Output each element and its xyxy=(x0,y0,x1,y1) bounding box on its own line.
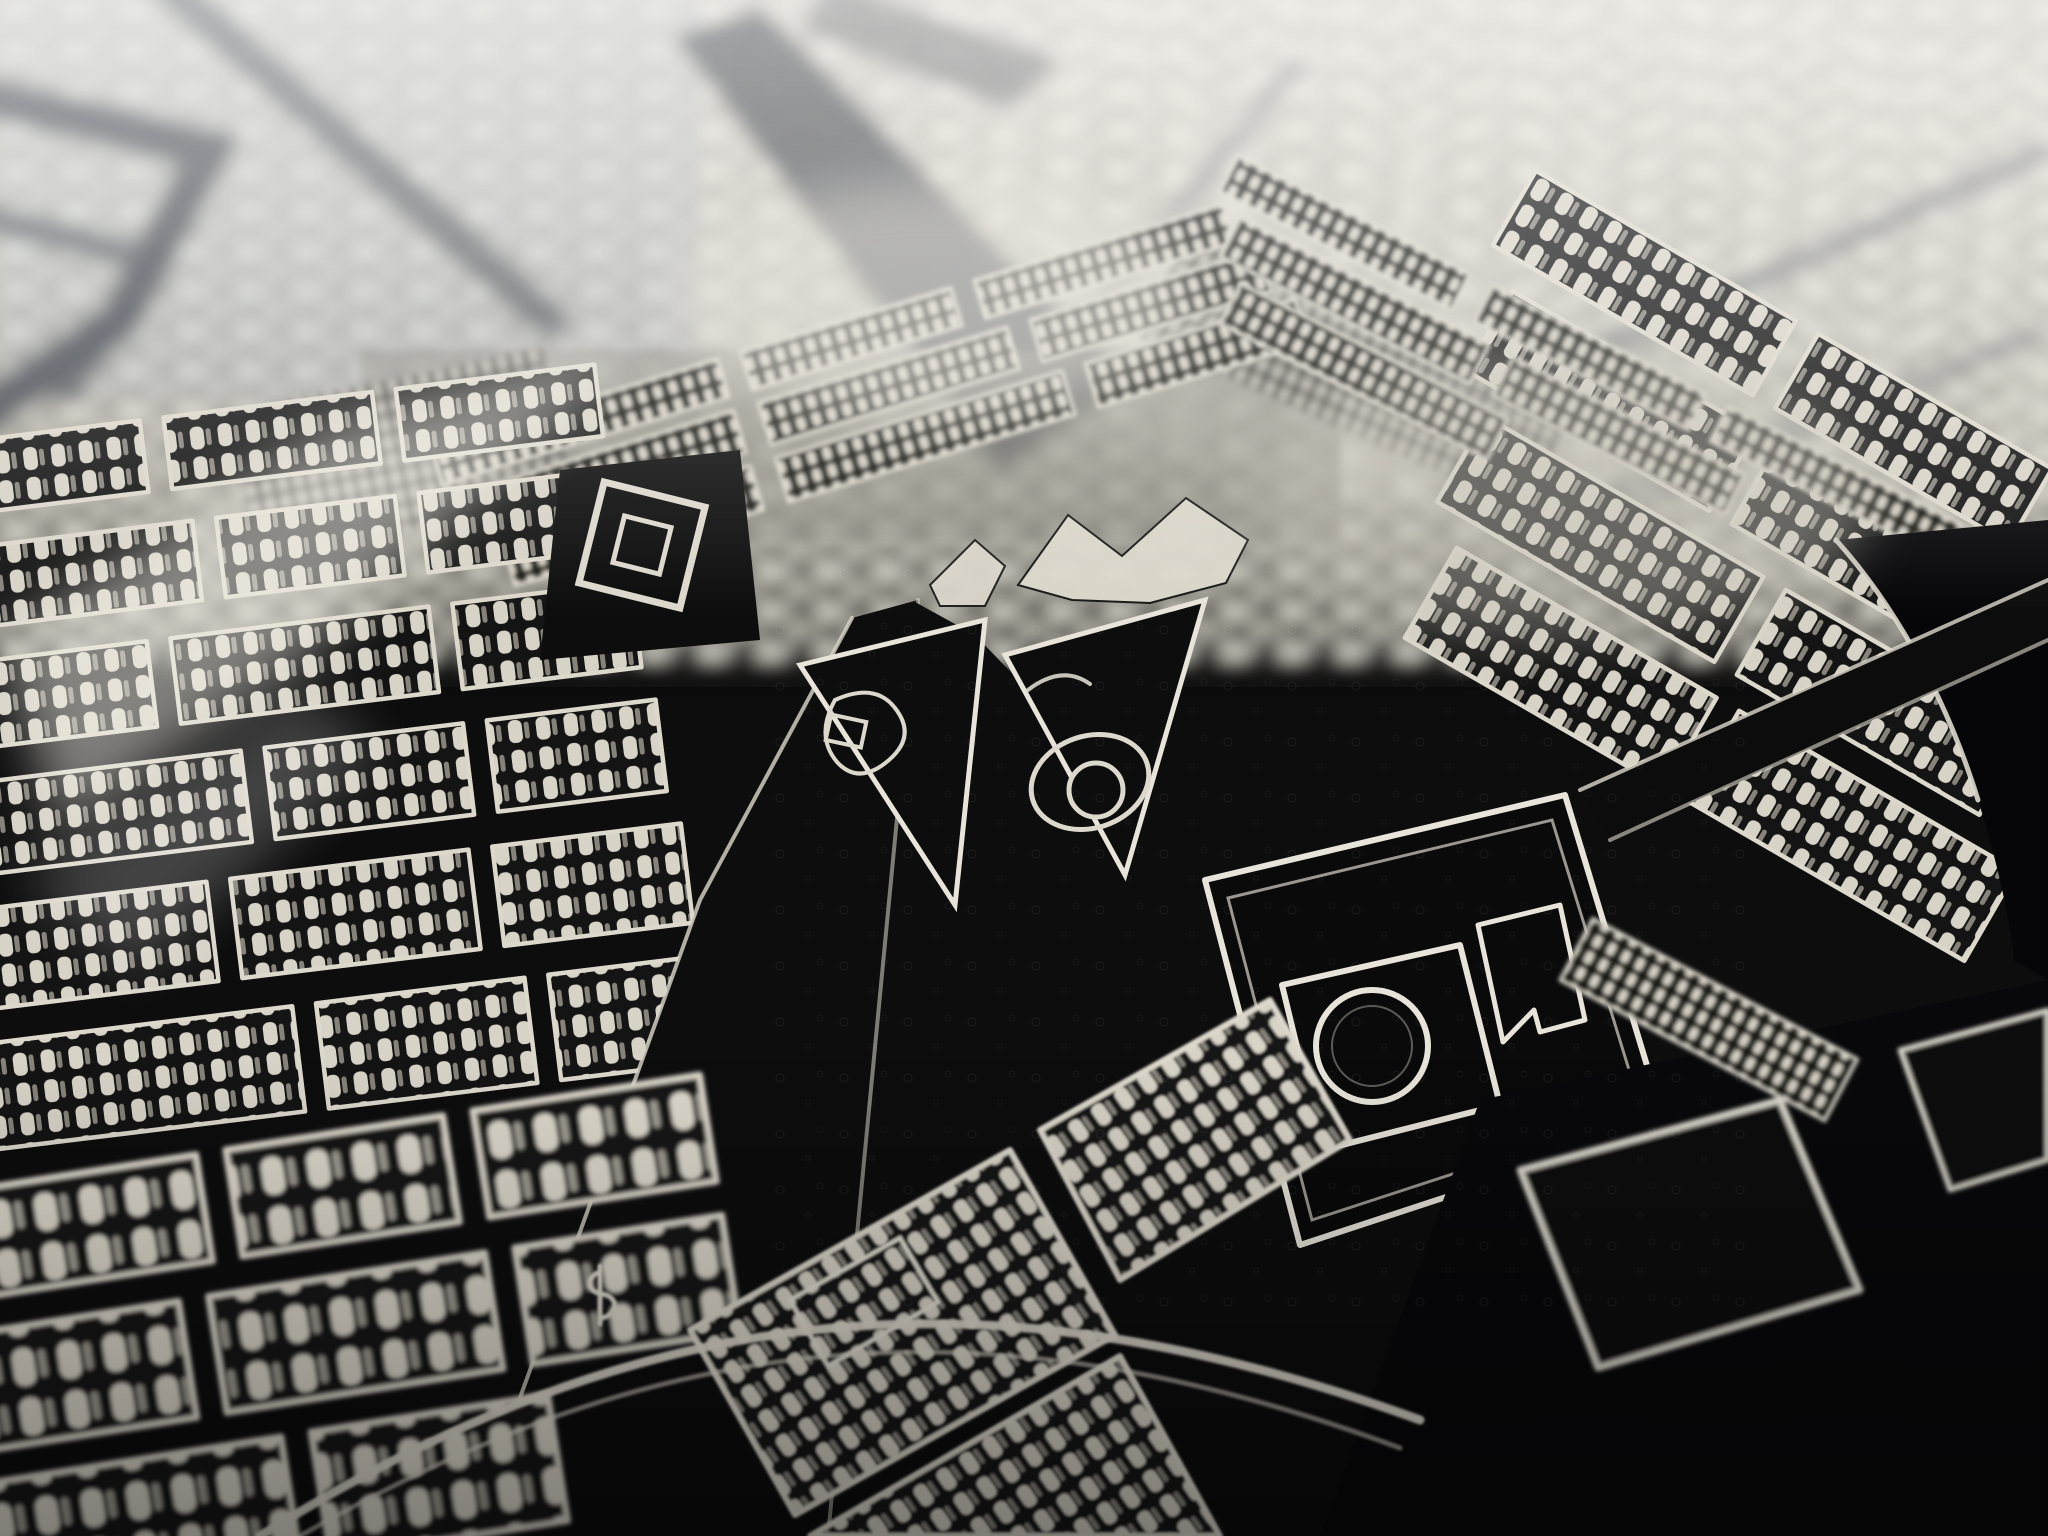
haze-patch xyxy=(670,180,1190,420)
specular-highlights xyxy=(0,0,2048,1536)
city-block xyxy=(487,700,667,812)
city-block xyxy=(492,824,693,946)
bottom-shadow xyxy=(0,1060,2048,1536)
macro-photo-metal-citymap xyxy=(0,0,2048,1536)
photo-canvas xyxy=(0,0,2048,1536)
